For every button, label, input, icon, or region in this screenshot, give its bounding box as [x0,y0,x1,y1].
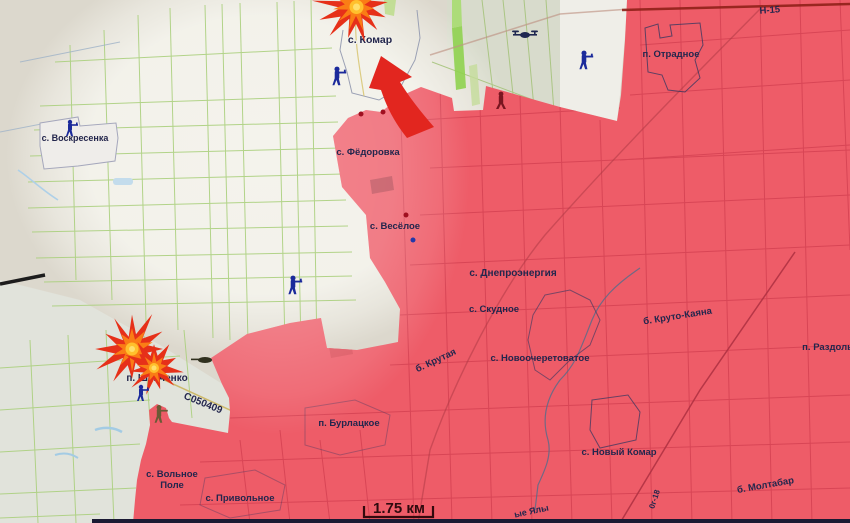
svg-text:п. Бурлацкое: п. Бурлацкое [318,418,379,429]
svg-text:с. Новоочеретоватое: с. Новоочеретоватое [490,353,589,364]
svg-text:Н-15: Н-15 [759,4,781,16]
svg-text:с. Днепроэнергия: с. Днепроэнергия [469,268,557,279]
svg-text:с. Воскресенка: с. Воскресенка [42,133,110,143]
svg-text:с. Скудное: с. Скудное [469,304,519,315]
svg-text:с. Фёдоровка: с. Фёдоровка [336,147,400,158]
svg-text:Поле: Поле [160,480,184,491]
svg-text:с. Новый Комар: с. Новый Комар [581,447,656,458]
svg-text:п. Раздольное: п. Раздольное [802,342,850,353]
svg-text:с. Комар: с. Комар [348,34,392,46]
svg-text:с. Вольное: с. Вольное [146,469,198,480]
svg-text:с. Привольное: с. Привольное [205,493,274,504]
svg-text:1.75 км: 1.75 км [373,500,425,517]
svg-text:п. Отрадное: п. Отрадное [643,49,700,60]
svg-text:с. Весёлое: с. Весёлое [370,221,420,232]
